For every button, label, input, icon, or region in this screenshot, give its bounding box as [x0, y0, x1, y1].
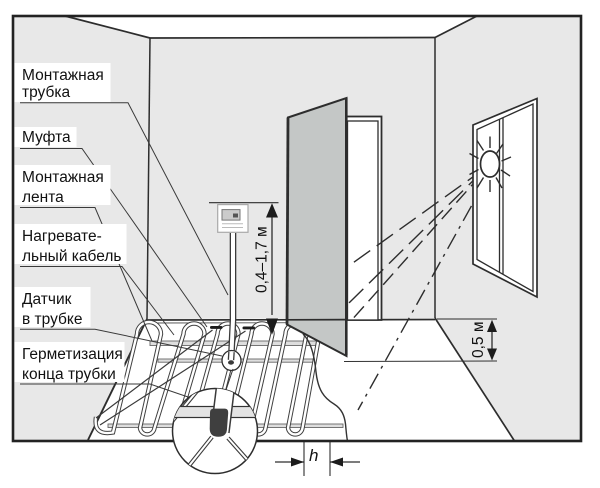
svg-text:конца трубки: конца трубки — [22, 366, 116, 383]
svg-text:льный кабель: льный кабель — [22, 248, 121, 265]
svg-text:трубка: трубка — [22, 84, 70, 101]
svg-text:Муфта: Муфта — [22, 129, 71, 146]
svg-text:0,5 м: 0,5 м — [470, 321, 487, 358]
svg-text:Монтажная: Монтажная — [22, 67, 104, 84]
svg-text:лента: лента — [22, 189, 64, 206]
svg-text:в трубке: в трубке — [22, 311, 82, 328]
svg-text:0,4–1,7 м: 0,4–1,7 м — [254, 226, 271, 293]
svg-text:h: h — [309, 446, 318, 465]
svg-text:Монтажная: Монтажная — [22, 169, 104, 186]
svg-text:Герметизация: Герметизация — [22, 346, 123, 363]
svg-text:Нагревате-: Нагревате- — [22, 228, 102, 245]
svg-text:Датчик: Датчик — [22, 291, 72, 308]
